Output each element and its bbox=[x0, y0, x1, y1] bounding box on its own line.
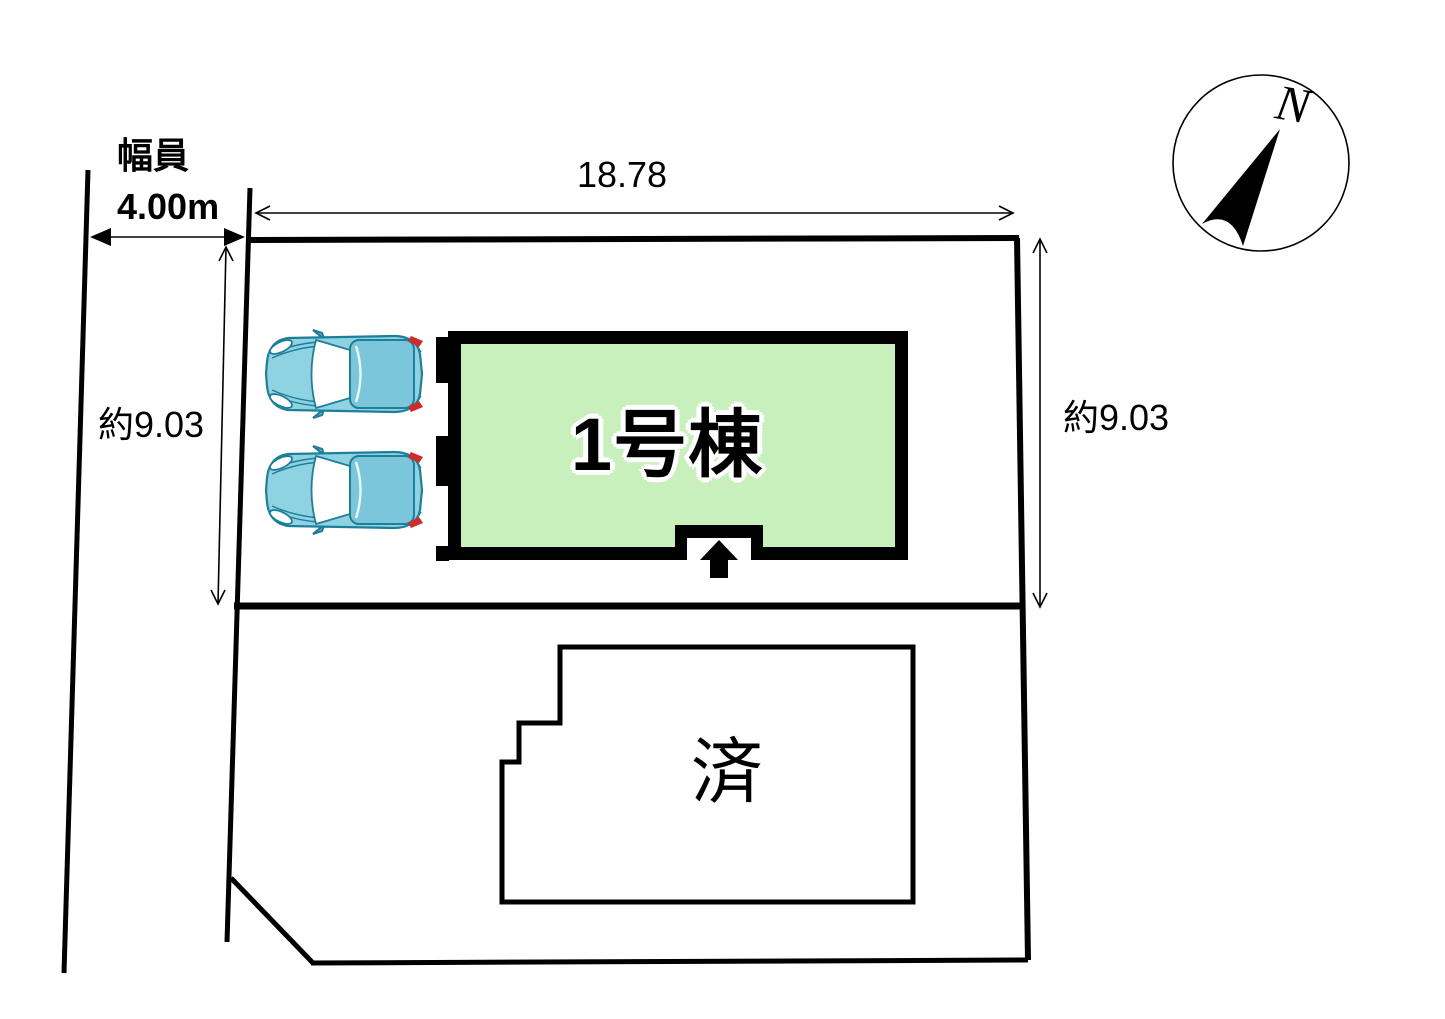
compass-needle-icon bbox=[1202, 129, 1280, 246]
site-plan-canvas bbox=[0, 0, 1445, 1019]
car-1 bbox=[266, 330, 423, 418]
right-dimension-arrow bbox=[1033, 239, 1047, 607]
top-dimension-label: 18.78 bbox=[577, 157, 667, 193]
lot-corner-chamfer bbox=[231, 878, 313, 963]
sold-label: 済 bbox=[691, 737, 763, 809]
top-dimension-arrow bbox=[256, 206, 1013, 220]
road-width-label: 幅員 bbox=[117, 138, 189, 174]
building-1-label: 1号棟 bbox=[571, 408, 763, 482]
lot-bottom-boundary bbox=[311, 960, 1028, 963]
lot-top-boundary bbox=[247, 238, 1019, 240]
road-width-value: 4.00m bbox=[117, 189, 219, 225]
compass bbox=[1173, 75, 1349, 251]
left-dimension-label: 約9.03 bbox=[98, 407, 204, 443]
lot-right-boundary bbox=[1017, 238, 1028, 960]
left-dimension-arrow bbox=[211, 247, 233, 604]
lot-left-boundary bbox=[227, 188, 250, 942]
road-width-arrow bbox=[90, 228, 245, 246]
right-dimension-label: 約9.03 bbox=[1063, 400, 1169, 436]
car-2 bbox=[266, 446, 423, 534]
road-edge-line bbox=[64, 170, 88, 973]
site-plan: 幅員 4.00m 18.78 約9.03 約9.03 1号棟 済 N bbox=[0, 0, 1445, 1019]
